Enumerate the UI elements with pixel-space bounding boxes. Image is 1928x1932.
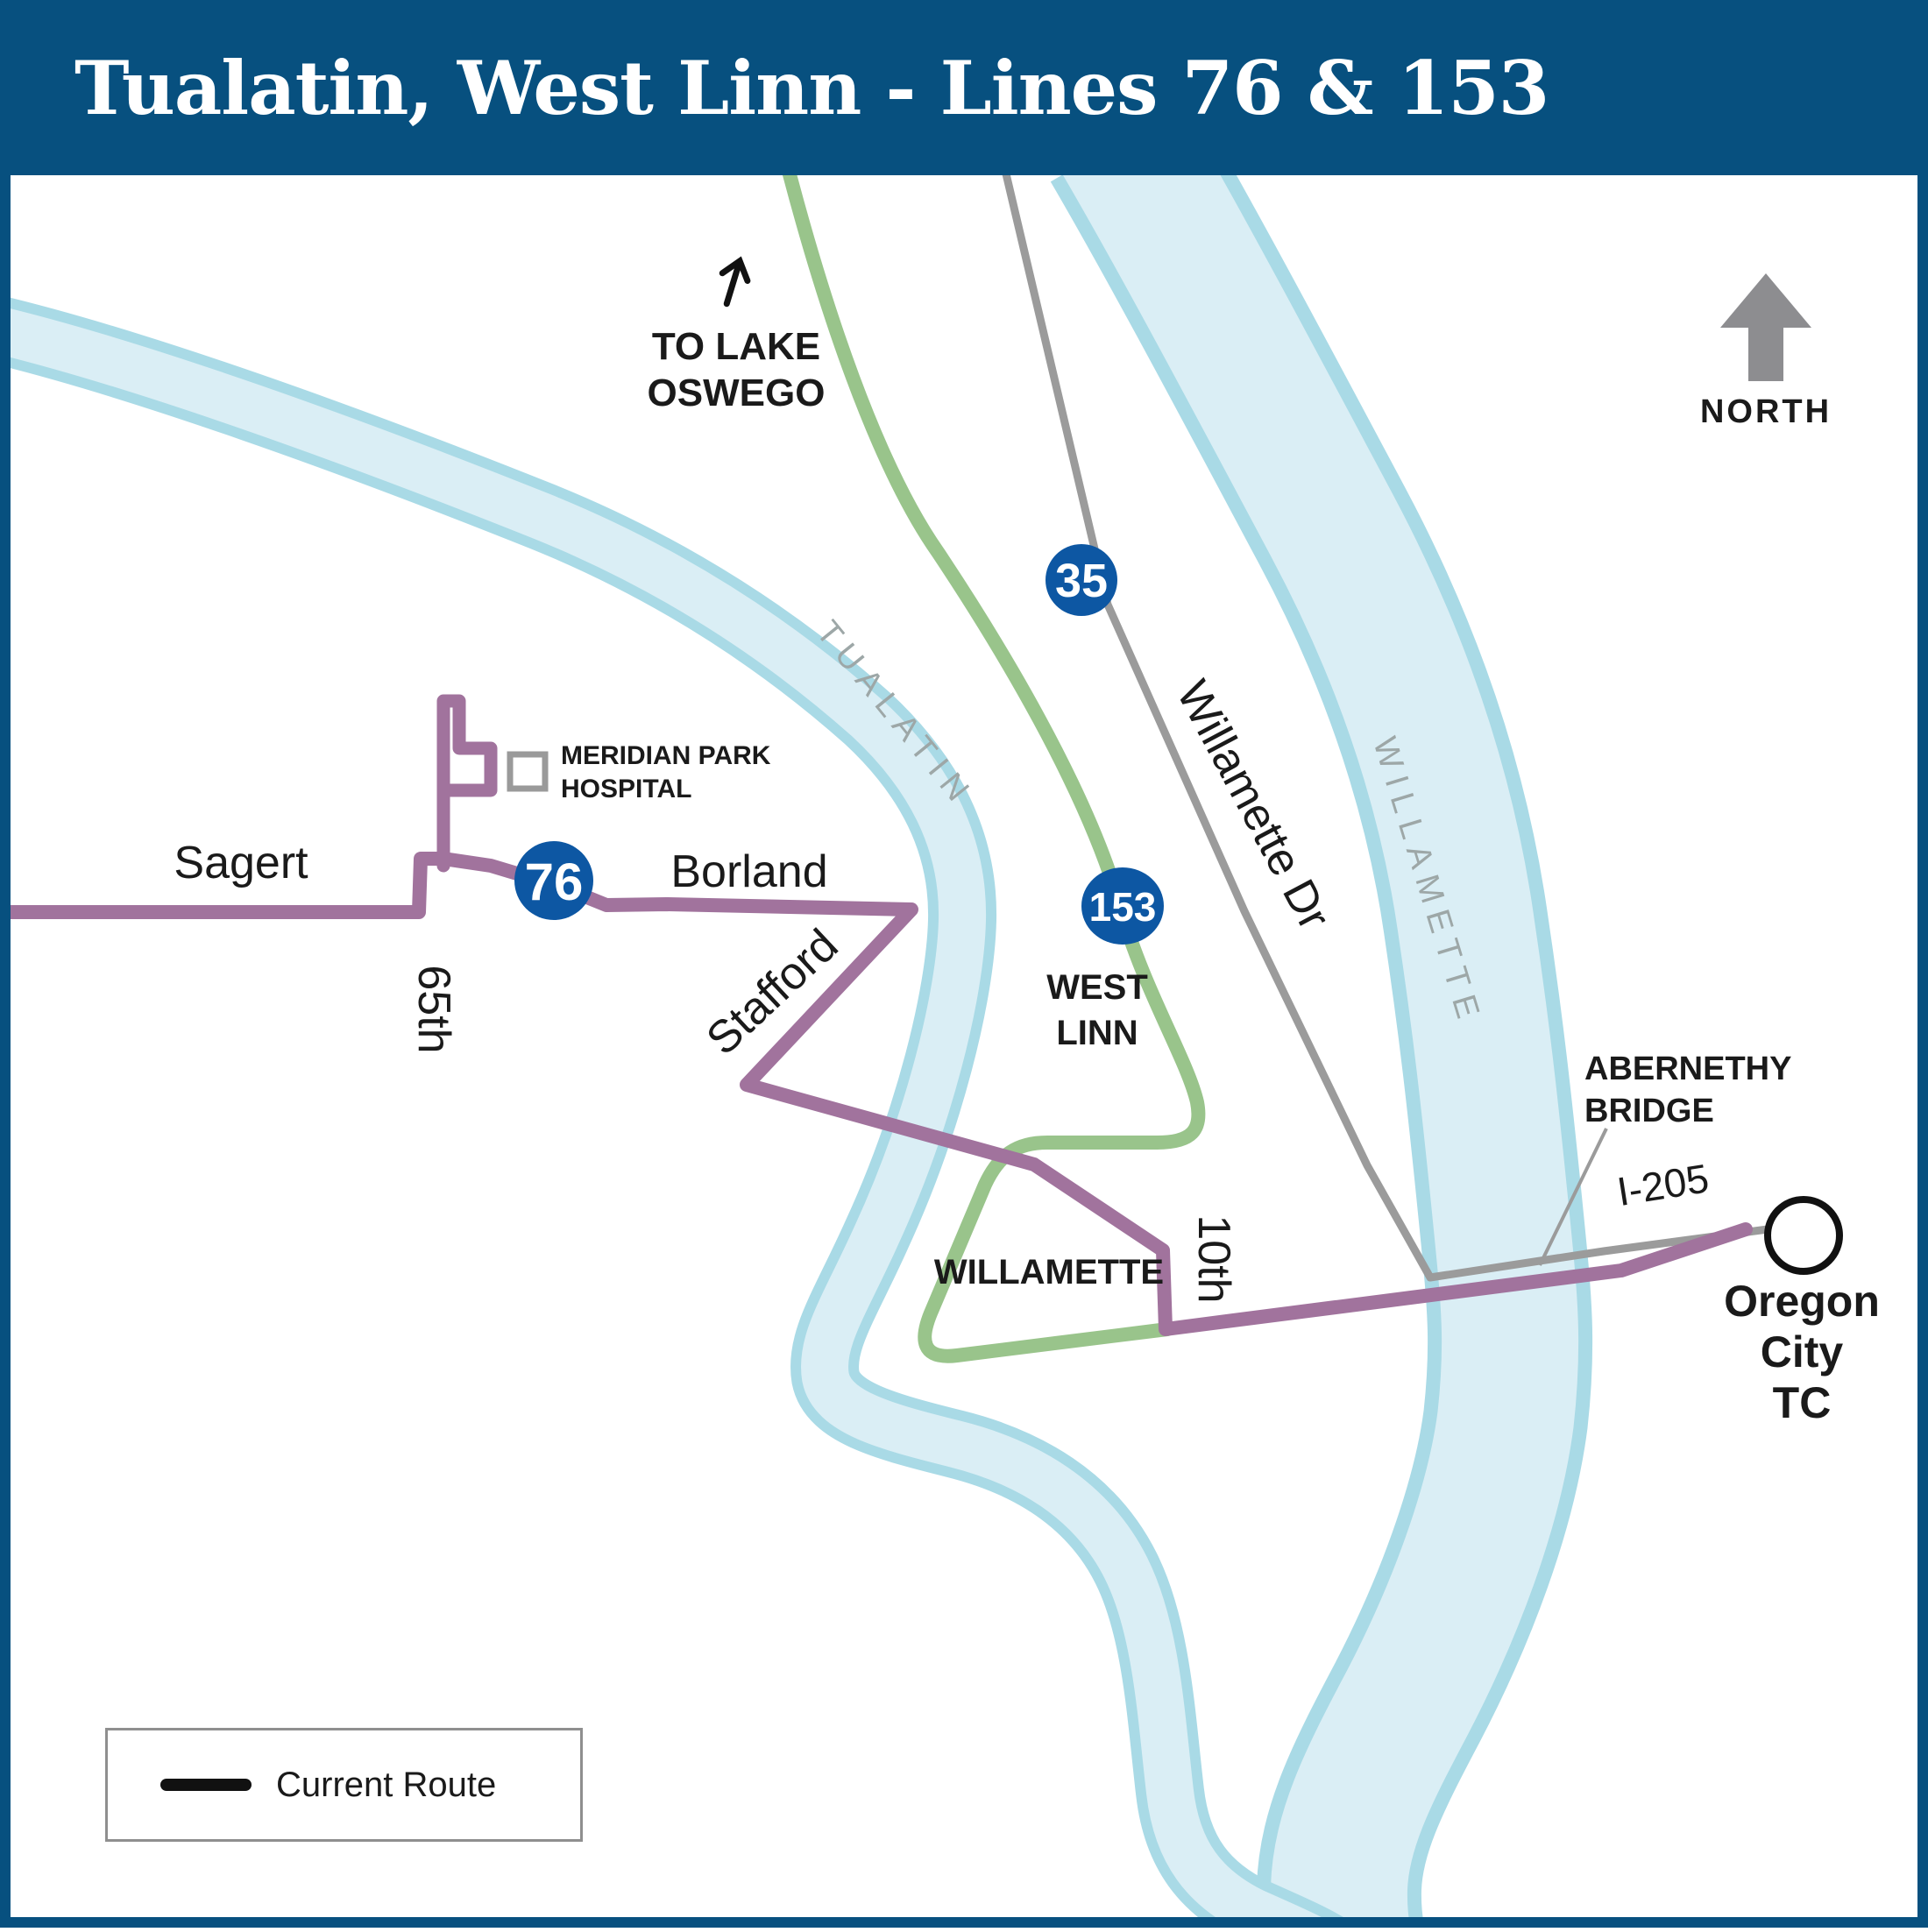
street-label-borland: Borland bbox=[670, 846, 827, 897]
svg-text:76: 76 bbox=[525, 853, 584, 911]
legend: Current Route bbox=[105, 1728, 583, 1842]
hospital-loop bbox=[443, 701, 491, 866]
street-label-sagert: Sagert bbox=[174, 838, 308, 888]
tualatin-river bbox=[0, 324, 1341, 1928]
abernethy-bridge-label-line2: BRIDGE bbox=[1584, 1093, 1714, 1129]
map-border-left bbox=[0, 0, 11, 1928]
map-border-bottom bbox=[0, 1917, 1928, 1928]
hospital-icon bbox=[510, 754, 545, 789]
hospital-label-line1: MERIDIAN PARK bbox=[561, 741, 771, 770]
oregon-city-tc-label-line3: TC bbox=[1773, 1378, 1832, 1427]
svg-text:35: 35 bbox=[1055, 555, 1108, 607]
to-lake-oswego-line2: OSWEGO bbox=[648, 372, 826, 414]
oregon-city-tc-label-line2: City bbox=[1761, 1327, 1844, 1376]
area-label-west-linn-line1: WEST bbox=[1046, 968, 1148, 1007]
street-label-i205: I-205 bbox=[1614, 1155, 1712, 1214]
route-badge-153: 153 bbox=[1081, 867, 1164, 945]
north-arrow-icon bbox=[1720, 273, 1811, 381]
hospital-label-line2: HOSPITAL bbox=[561, 775, 691, 803]
map-border-right bbox=[1917, 0, 1928, 1928]
route-badge-35: 35 bbox=[1046, 544, 1117, 616]
abernethy-bridge-label-line1: ABERNETHY bbox=[1584, 1051, 1791, 1087]
area-label-willamette-district: WILLAMETTE bbox=[934, 1253, 1164, 1292]
area-label-west-linn-line2: LINN bbox=[1056, 1014, 1138, 1052]
page-title: Tualatin, West Linn - Lines 76 & 153 bbox=[74, 45, 1549, 131]
current-route-swatch bbox=[160, 1779, 252, 1791]
legend-label: Current Route bbox=[276, 1766, 496, 1805]
oregon-city-tc-label-line1: Oregon bbox=[1724, 1277, 1880, 1326]
street-label-65th: 65th bbox=[408, 965, 459, 1053]
transit-map: TUALATIN WILLAMETTE MERIDIAN PARK HOSPIT… bbox=[0, 175, 1928, 1928]
route-153-line bbox=[785, 175, 1198, 1356]
street-label-willamette-dr: Willamette Dr bbox=[1166, 673, 1340, 938]
to-lake-oswego-line1: TO LAKE bbox=[652, 325, 820, 368]
street-label-10th: 10th bbox=[1188, 1214, 1239, 1303]
north-label: NORTH bbox=[1700, 393, 1832, 430]
to-lake-oswego-arrow-icon bbox=[714, 258, 753, 308]
map-canvas: TUALATIN WILLAMETTE MERIDIAN PARK HOSPIT… bbox=[0, 175, 1928, 1928]
route-badge-76: 76 bbox=[514, 841, 593, 920]
map-header: Tualatin, West Linn - Lines 76 & 153 bbox=[0, 0, 1928, 175]
oregon-city-tc-marker bbox=[1768, 1200, 1839, 1271]
svg-text:153: 153 bbox=[1089, 884, 1157, 930]
